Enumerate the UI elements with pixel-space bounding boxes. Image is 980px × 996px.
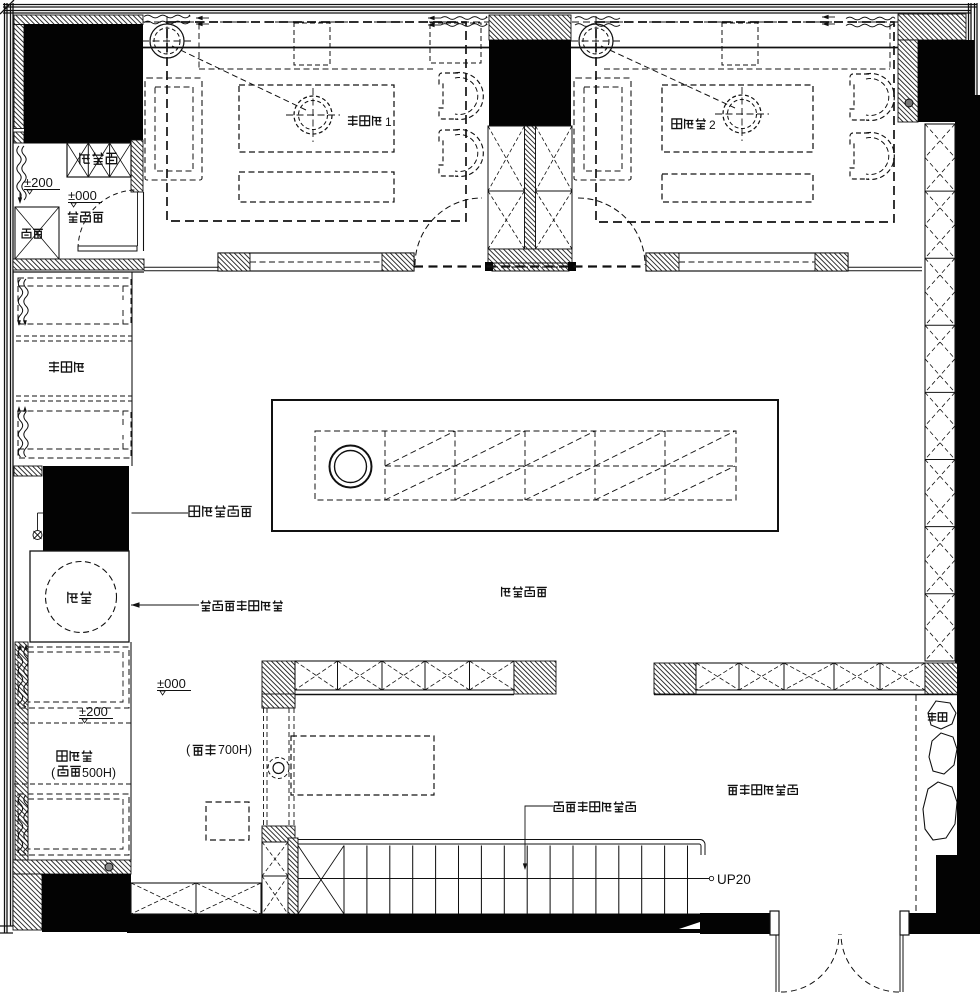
- svg-text:(: (: [51, 765, 56, 780]
- svg-text:1: 1: [385, 115, 392, 129]
- svg-text:±000: ±000: [68, 188, 97, 203]
- svg-text:±000: ±000: [157, 676, 186, 691]
- svg-text:(: (: [186, 742, 191, 757]
- svg-text:700H): 700H): [218, 743, 252, 757]
- svg-text:±200: ±200: [79, 704, 108, 719]
- svg-text:UP20: UP20: [717, 872, 751, 887]
- svg-text:2: 2: [709, 118, 716, 132]
- svg-text:500H): 500H): [82, 766, 116, 780]
- svg-text:±200: ±200: [24, 175, 53, 190]
